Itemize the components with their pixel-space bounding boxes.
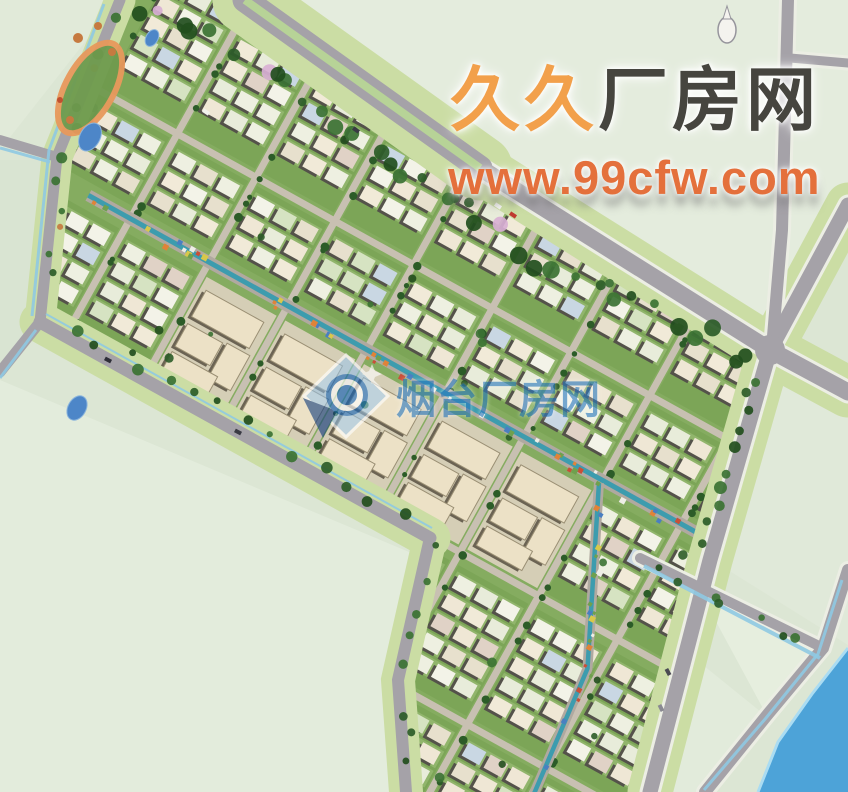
hedge-tree bbox=[670, 318, 688, 336]
ornamental-tree bbox=[108, 48, 116, 56]
hedge-tree bbox=[656, 564, 663, 571]
hedge-tree bbox=[286, 451, 297, 462]
hedge-tree bbox=[510, 247, 528, 265]
hedge-tree bbox=[605, 279, 614, 288]
hedge-tree bbox=[129, 349, 136, 356]
hedge-tree bbox=[49, 269, 56, 276]
hedge-tree bbox=[542, 261, 560, 279]
hedge-tree bbox=[790, 633, 800, 643]
hedge-tree bbox=[56, 152, 67, 163]
hedge-tree bbox=[442, 193, 455, 206]
hedge-tree bbox=[59, 208, 65, 214]
hedge-tree bbox=[607, 292, 621, 306]
hedge-tree bbox=[412, 610, 421, 619]
hedge-tree bbox=[72, 325, 84, 337]
hedge-tree bbox=[111, 13, 121, 23]
hedge-tree bbox=[46, 251, 53, 258]
hedge-tree bbox=[399, 712, 408, 721]
hedge-tree bbox=[400, 508, 411, 519]
hedge-tree bbox=[228, 48, 241, 61]
road-northeast bbox=[790, 58, 848, 63]
hedge-tree bbox=[316, 105, 328, 117]
hedge-tree bbox=[384, 157, 398, 171]
hedge-tree bbox=[744, 406, 753, 415]
hedge-tree bbox=[398, 659, 407, 668]
hedge-tree bbox=[722, 470, 731, 479]
hedge-tree bbox=[673, 578, 682, 587]
hedge-tree bbox=[466, 215, 482, 231]
ornamental-tree bbox=[73, 33, 83, 43]
hedge-tree bbox=[432, 542, 439, 549]
hedge-tree bbox=[202, 23, 216, 37]
hedge-tree bbox=[714, 599, 723, 608]
hedge-tree bbox=[393, 169, 408, 184]
hedge-tree bbox=[704, 319, 721, 336]
hedge-tree bbox=[244, 415, 254, 425]
hedge-tree bbox=[571, 272, 580, 281]
hedge-tree bbox=[738, 348, 752, 362]
hedge-tree bbox=[180, 23, 197, 40]
hedge-tree bbox=[344, 126, 359, 141]
hedge-tree bbox=[729, 441, 741, 453]
hedge-tree bbox=[758, 614, 764, 620]
hedge-tree bbox=[89, 341, 98, 350]
hedge-tree bbox=[626, 291, 636, 301]
hedge-tree bbox=[341, 482, 351, 492]
hedge-tree bbox=[374, 145, 389, 160]
hedge-tree bbox=[321, 462, 333, 474]
hedge-tree bbox=[270, 67, 285, 82]
site-plan-image: 久久厂房网 www.99cfw.com 烟台厂房网 bbox=[0, 0, 848, 792]
hedge-tree bbox=[423, 578, 430, 585]
hedge-tree bbox=[214, 397, 221, 404]
hedge-tree bbox=[407, 728, 415, 736]
hedge-tree bbox=[190, 388, 198, 396]
hedge-tree bbox=[714, 500, 725, 511]
hedge-tree bbox=[51, 176, 60, 185]
hedge-tree bbox=[650, 299, 659, 308]
hedge-tree bbox=[741, 388, 750, 397]
hedge-tree bbox=[464, 198, 474, 208]
hedge-tree bbox=[132, 6, 147, 21]
ornamental-tree bbox=[94, 22, 102, 30]
road-junction bbox=[755, 335, 785, 365]
hedge-tree bbox=[132, 364, 144, 376]
hedge-tree bbox=[298, 98, 307, 107]
hedge-tree bbox=[751, 378, 760, 387]
hedge-tree bbox=[406, 631, 414, 639]
hedge-tree bbox=[687, 330, 703, 346]
hedge-tree bbox=[267, 431, 273, 437]
hedge-tree bbox=[57, 224, 63, 230]
hedge-tree bbox=[703, 517, 711, 525]
hedge-tree bbox=[402, 758, 409, 765]
hedge-tree bbox=[735, 427, 744, 436]
flower-bed bbox=[57, 97, 63, 103]
hedge-tree bbox=[779, 632, 787, 640]
hedge-tree bbox=[327, 119, 343, 135]
master-plan-rendering bbox=[0, 0, 848, 792]
hedge-tree bbox=[698, 539, 707, 548]
hedge-tree bbox=[526, 260, 543, 277]
ornamental-tree bbox=[66, 116, 74, 124]
hedge-tree bbox=[167, 376, 176, 385]
hedge-tree bbox=[417, 173, 426, 182]
hedge-tree bbox=[714, 481, 727, 494]
hedge-tree bbox=[493, 217, 508, 232]
hedge-tree bbox=[362, 496, 373, 507]
hedge-tree bbox=[153, 6, 163, 16]
tower-body bbox=[718, 17, 736, 43]
